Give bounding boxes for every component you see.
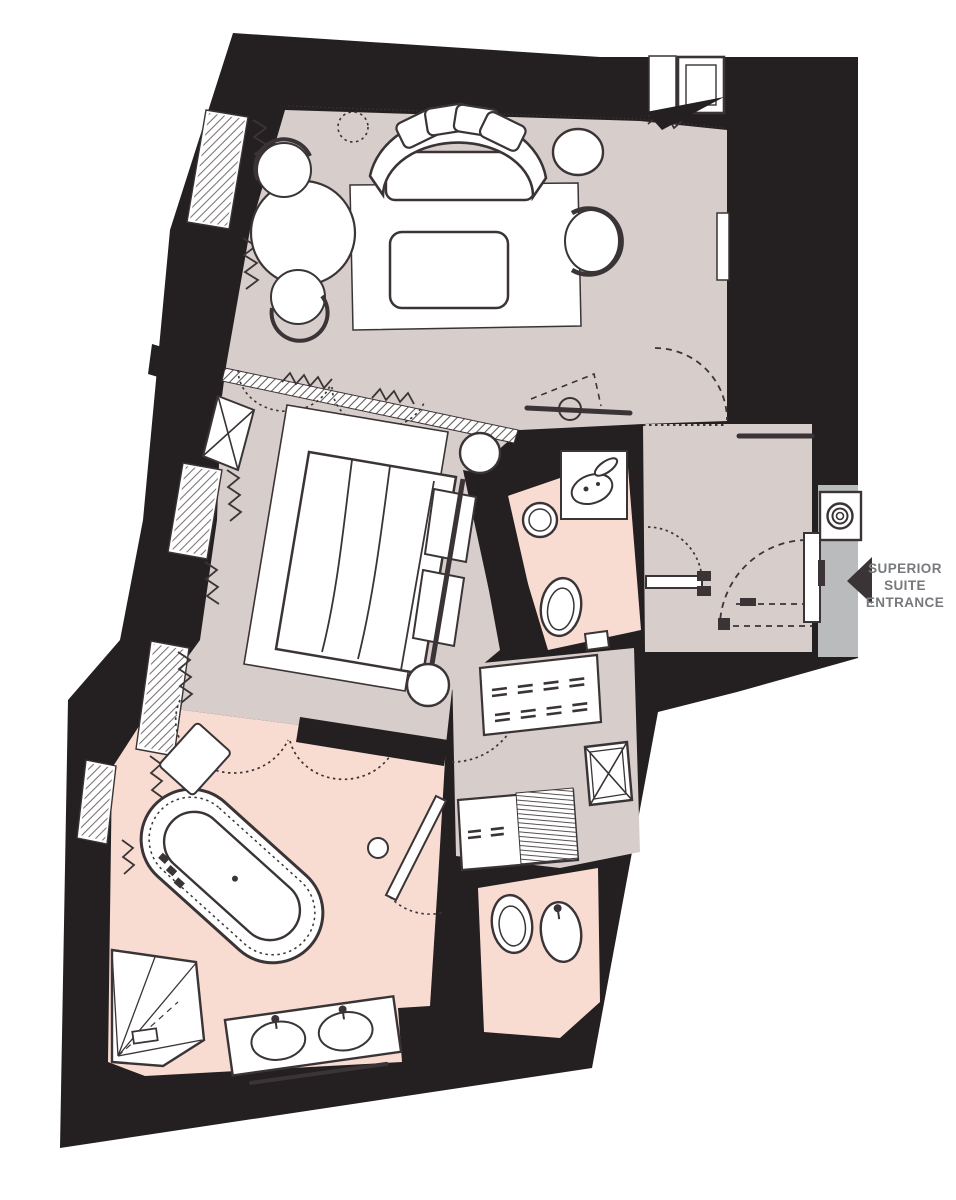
wc-vessel-dot xyxy=(596,482,600,486)
linen-shaft xyxy=(585,742,632,805)
wc2-floor xyxy=(478,868,600,1038)
coffee-table xyxy=(390,232,508,308)
wardrobe-upper xyxy=(480,655,601,735)
washbasin xyxy=(523,503,557,537)
door-stop-block xyxy=(740,598,756,606)
door-hinge-block xyxy=(697,586,711,596)
shower xyxy=(112,950,204,1066)
nightstand-lamp xyxy=(407,664,449,706)
armchair xyxy=(565,209,622,275)
entrance-label-line2: SUITE xyxy=(884,578,926,593)
wall-niche-shelf xyxy=(717,213,729,280)
closet-door-panel xyxy=(649,56,676,116)
entrance-door-handle xyxy=(818,560,825,586)
entrance-door-leaf xyxy=(804,533,820,622)
stool xyxy=(368,838,388,858)
dining-chair xyxy=(257,143,311,197)
wc-door-leaf xyxy=(646,576,702,588)
entrance-light-fixture xyxy=(820,492,861,540)
wc-vessel-dot xyxy=(584,487,589,492)
door-stop-block xyxy=(718,618,730,630)
wc-bin xyxy=(585,631,609,650)
floor-plan-svg: SUPERIOR SUITE ENTRANCE xyxy=(0,0,956,1200)
floor-plan-page: SUPERIOR SUITE ENTRANCE xyxy=(0,0,956,1200)
dining-chair xyxy=(271,270,325,324)
entry-hall-floor xyxy=(643,424,812,652)
drawer-unit-hatch xyxy=(516,788,578,864)
wardrobe-lower xyxy=(458,788,578,870)
door-hinge-block xyxy=(697,571,711,581)
entrance-label-line1: SUPERIOR xyxy=(868,561,942,576)
shower-head xyxy=(132,1028,157,1043)
entrance-label-line3: ENTRANCE xyxy=(866,595,944,610)
side-table xyxy=(553,129,603,175)
nightstand-lamp xyxy=(460,433,500,473)
round-table xyxy=(251,181,355,285)
